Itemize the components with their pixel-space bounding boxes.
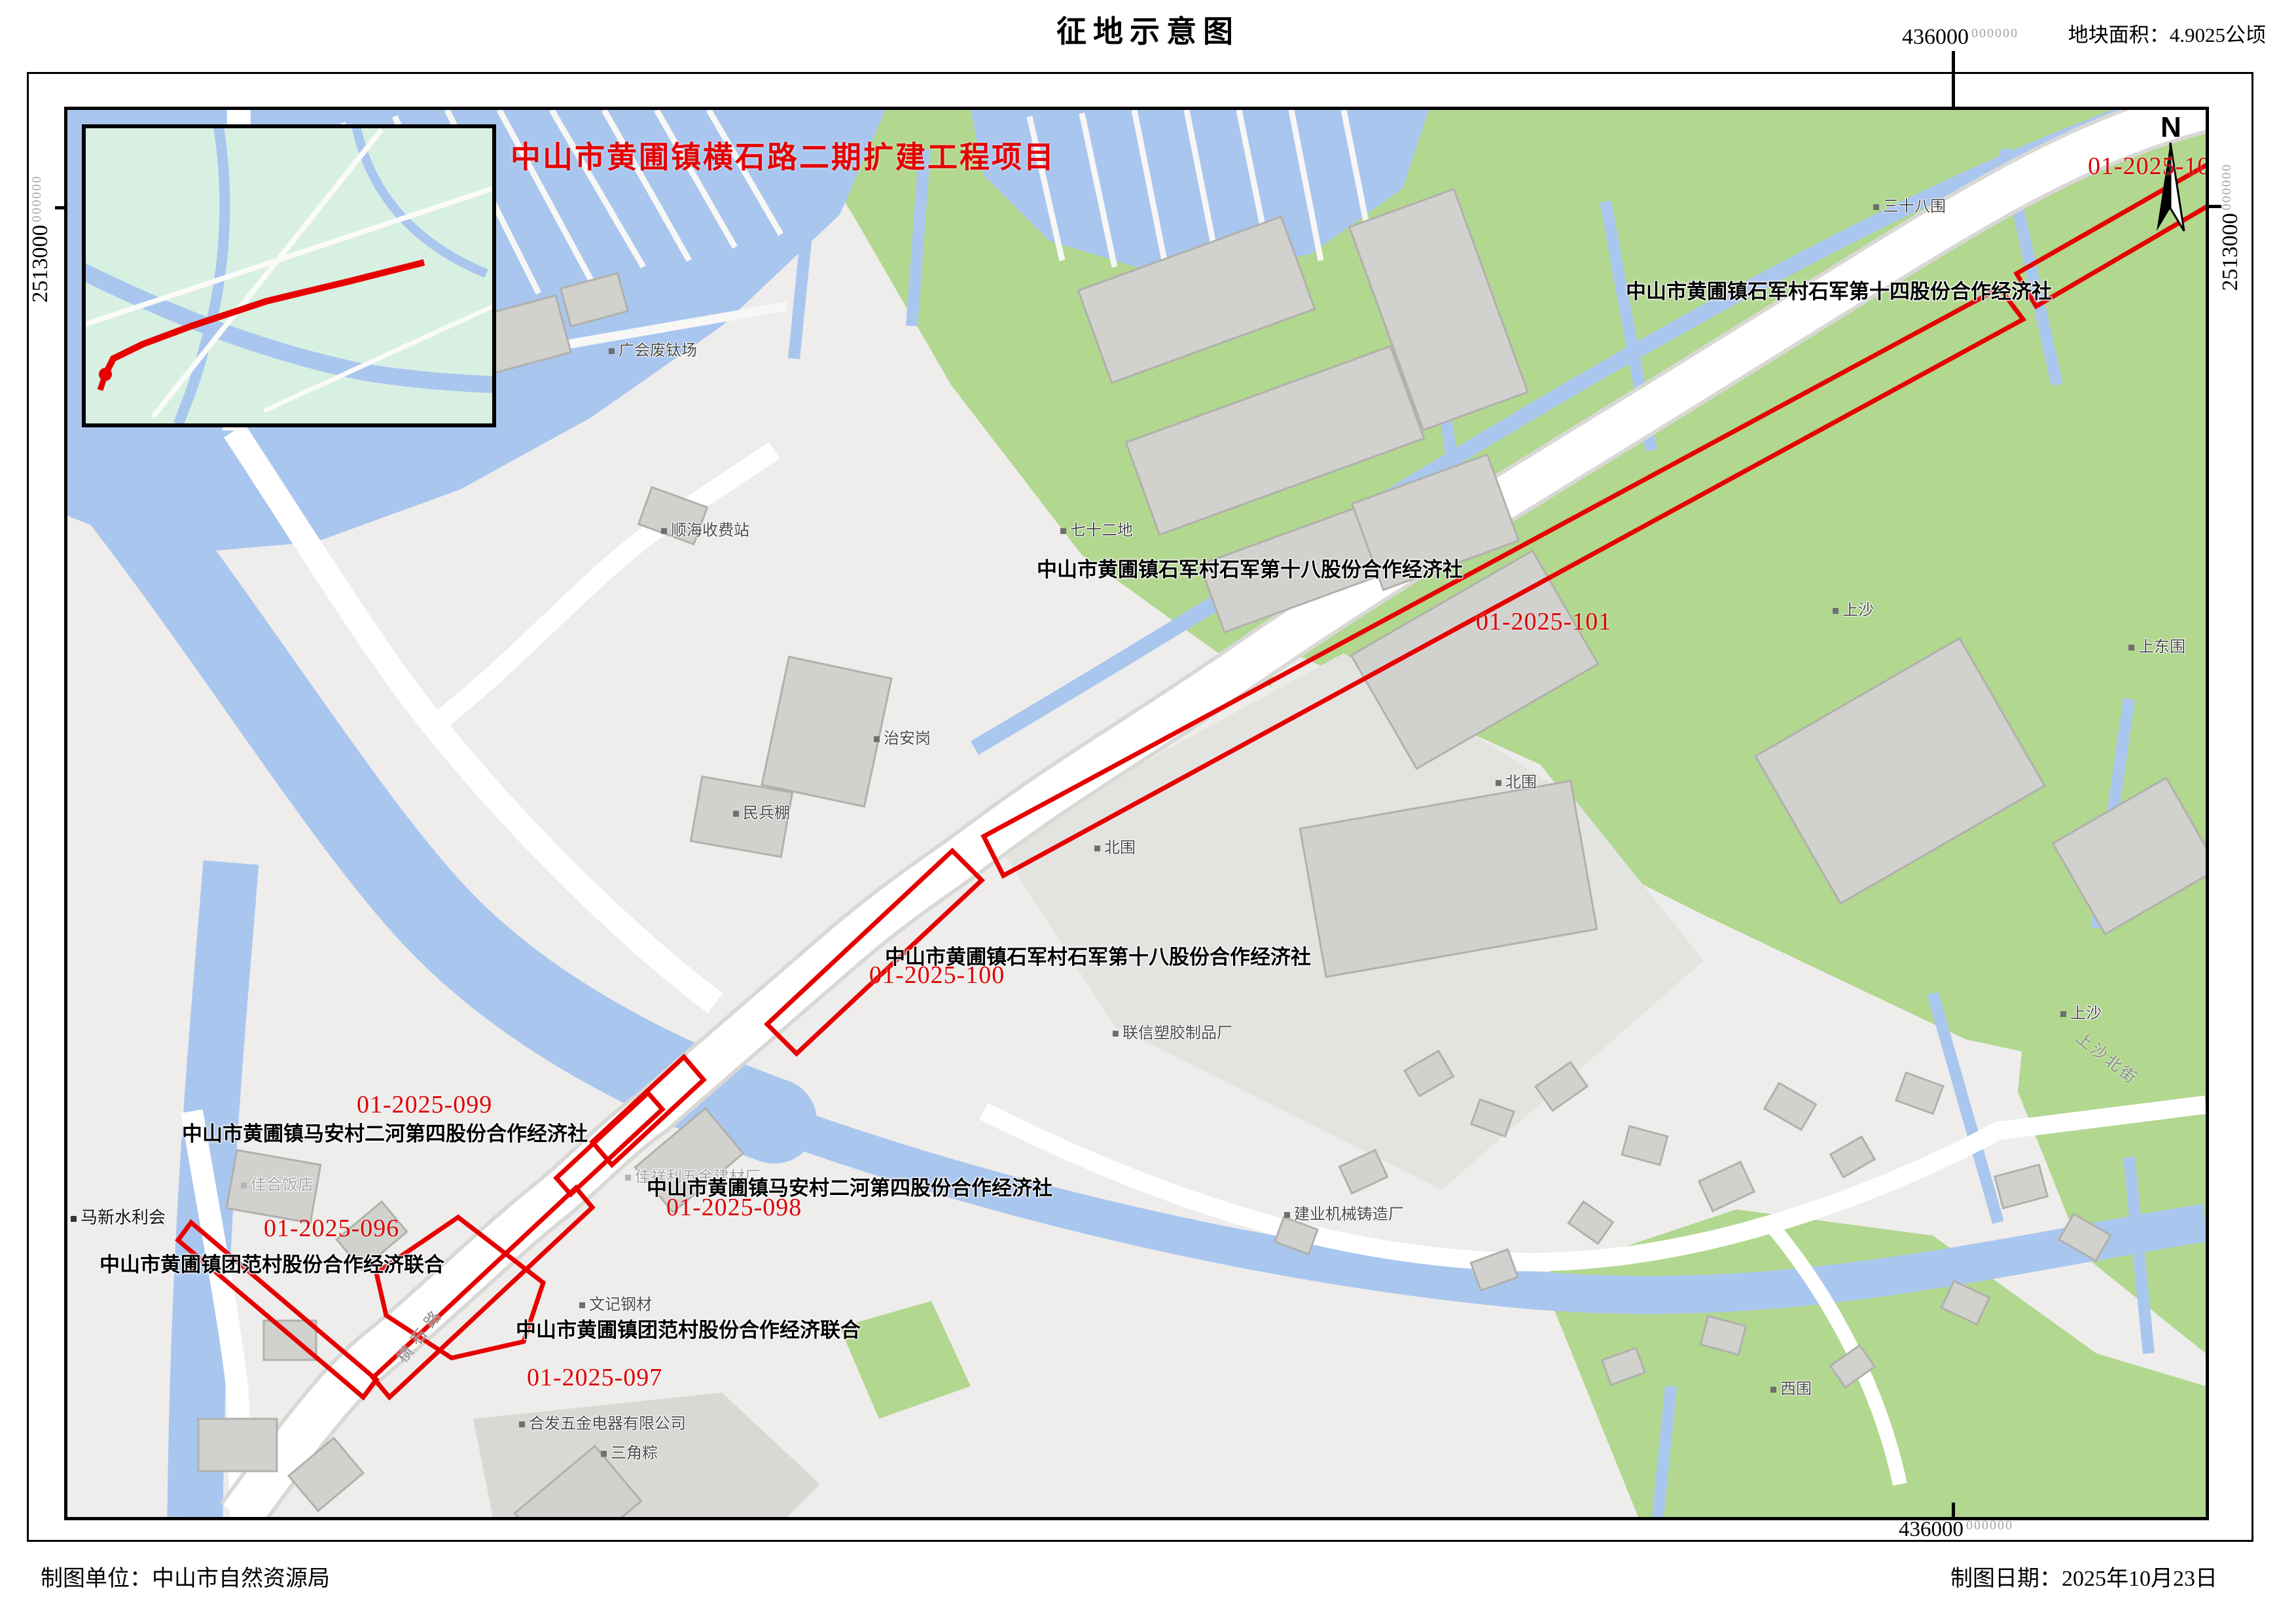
poi-label: 北围	[1094, 834, 1136, 857]
poi-label: 建业机械铸造厂	[1284, 1201, 1404, 1224]
project-title: 中山市黄圃镇横石路二期扩建工程项目	[511, 134, 1056, 177]
map-canvas: 中山市黄圃镇横石路二期扩建工程项目 N 横石路 上沙北街 广会废钛场 顺海收费站…	[67, 110, 2206, 1517]
parcel-code-label: 01-2025-099	[357, 1090, 492, 1119]
inset-locator-map	[74, 123, 499, 425]
poi-label: 佳合饭店	[241, 1171, 314, 1194]
poi-label: 民兵棚	[733, 800, 790, 823]
parcel-code-label: 01-2025-096	[264, 1214, 399, 1243]
poi-label: 广会废钛场	[609, 337, 697, 360]
poi-label: 治安岗	[874, 725, 931, 748]
grid-tick-bottom	[1952, 1503, 1955, 1520]
poi-label: 西围	[1770, 1376, 1812, 1399]
org-label: 中山市黄圃镇团范村股份合作经济联合	[99, 1248, 444, 1277]
poi-label: 文记钢材	[579, 1291, 652, 1314]
poi-label: 上沙	[2060, 1000, 2102, 1023]
poi-label: 合发五金电器有限公司	[519, 1410, 686, 1433]
poi-label: 北围	[1496, 769, 1537, 792]
org-label: 中山市黄圃镇马安村二河第四股份合作经济社	[182, 1117, 588, 1147]
north-label: N	[2161, 111, 2181, 144]
credit-mapping-date: 制图日期：2025年10月23日	[1950, 1560, 2217, 1592]
map-frame: 中山市黄圃镇横石路二期扩建工程项目 N 横石路 上沙北街 广会废钛场 顺海收费站…	[64, 107, 2209, 1520]
org-label: 中山市黄圃镇石军村石军第十八股份合作经济社	[1037, 553, 1463, 582]
parcel-area-note: 地块面积：4.9025公顷	[2068, 18, 2266, 48]
poi-label: 三十八围	[1873, 193, 1946, 216]
poi-label: 上沙	[1833, 597, 1874, 620]
parcel-code-label: 01-2025-097	[527, 1363, 662, 1392]
poi-label: 上东围	[2128, 633, 2185, 656]
poi-label: 顺海收费站	[661, 517, 749, 540]
org-label: 中山市黄圃镇石军村石军第十四股份合作经济社	[1626, 275, 2052, 304]
parcel-code-label: 01-2025-101	[1476, 607, 1611, 636]
org-label: 中山市黄圃镇团范村股份合作经济联合	[516, 1313, 861, 1343]
poi-label: 马新水利会	[71, 1204, 166, 1228]
parcel-code-label: 01-2025-102	[2088, 152, 2209, 181]
poi-label: 三角粽	[601, 1440, 658, 1463]
map-sheet: 征地示意图 地块面积：4.9025公顷 436000000000 4360000…	[0, 0, 2296, 1623]
parcel-code-label: 01-2025-100	[869, 961, 1005, 990]
poi-label: 联信塑胶制品厂	[1113, 1020, 1232, 1043]
poi-label: 七十二地	[1060, 517, 1133, 540]
parcel-code-label: 01-2025-098	[666, 1193, 802, 1222]
credit-mapping-unit: 制图单位：中山市自然资源局	[41, 1560, 330, 1592]
coordinate-label-top: 436000000000	[1902, 26, 2018, 48]
basemap	[67, 110, 2206, 1517]
